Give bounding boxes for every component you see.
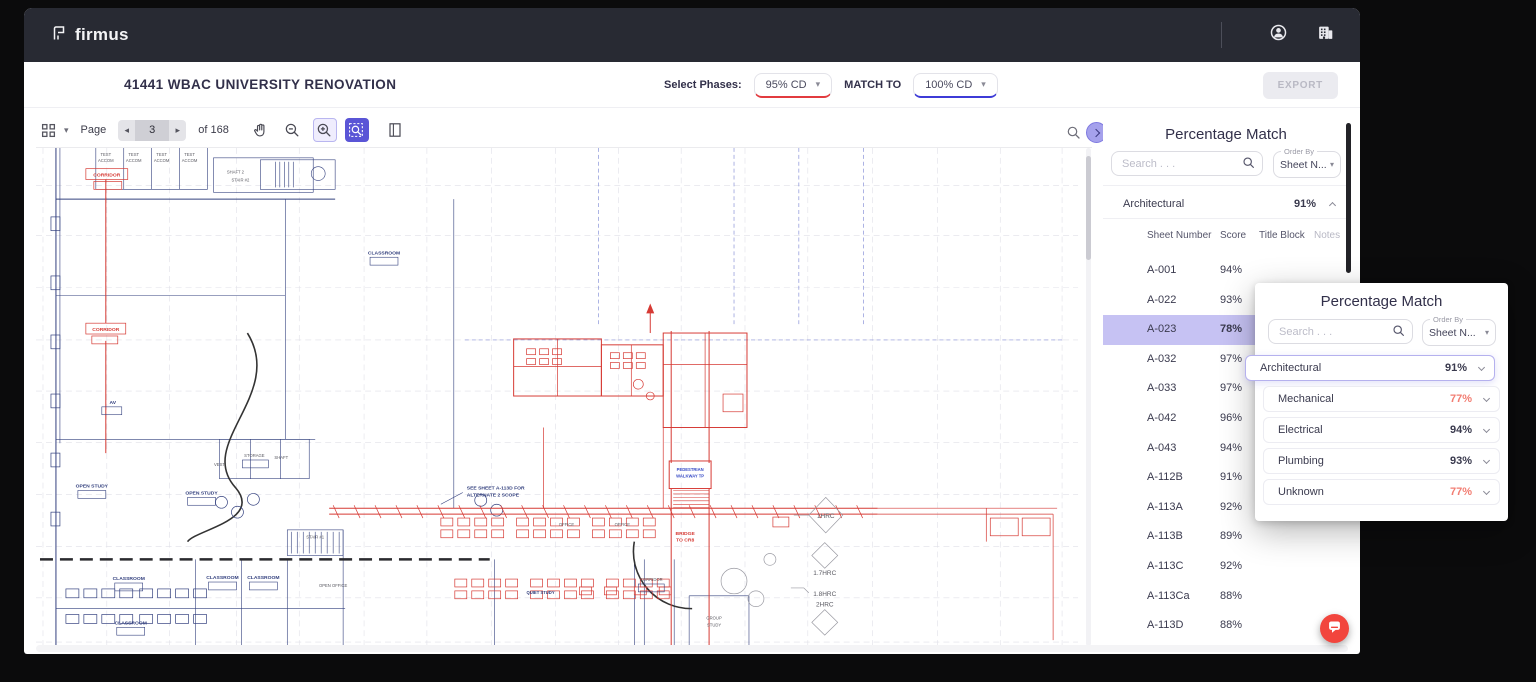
table-row[interactable]: A-113D88% [1103,611,1349,641]
category-name: Plumbing [1278,455,1324,467]
table-row[interactable]: A-00194% [1103,256,1349,286]
brand-logo[interactable]: firmus [50,24,129,47]
thumbnails-caret-icon[interactable]: ▾ [64,125,69,136]
previous-page-button[interactable]: ◂ [118,120,135,141]
divider [1103,218,1349,219]
sheet-score: 89% [1220,530,1242,542]
label-2hrc: 2HRC [816,602,834,609]
table-row[interactable]: A-113C92% [1103,552,1349,582]
sheet-score: 97% [1220,353,1242,365]
sheet-score: 91% [1220,471,1242,483]
sheet-score: 96% [1220,412,1242,424]
sheet-number: A-022 [1147,294,1176,306]
page-navigator: ◂ ▸ [118,120,186,141]
sheet-number: A-032 [1147,353,1176,365]
sheet-score: 88% [1220,619,1242,631]
popup-category-electrical[interactable]: Electrical 94% [1263,417,1500,443]
sheet-score: 78% [1220,323,1242,335]
label-office: OFFICE [615,522,631,527]
sheet-score: 88% [1220,590,1242,602]
divider [1103,185,1349,186]
canvas-scrollbar[interactable] [1086,148,1091,646]
pdf-toolbar: ▾ Page ◂ ▸ of 168 [36,114,1092,146]
chat-bubble-icon [1327,619,1342,639]
label-corridor: CORRIDOR [640,577,663,582]
sheet-number: A-113Ca [1147,590,1190,602]
canvas-scrollbar-thumb[interactable] [1086,156,1091,260]
label-group-study: STUDY [707,622,721,627]
chevron-right-icon [1091,128,1099,136]
plan-stair-hatch [275,162,339,554]
label-quiet-study: QUIET STUDY [526,590,554,595]
panel-title: Percentage Match [1103,126,1349,143]
plan-match-lines [465,148,1063,340]
plan-labels: TEST ACCOM TEST ACCOM TEST ACCOM TEST AC… [76,152,837,635]
plan-furniture [51,217,669,623]
label-1hrc: 1HRC [817,513,835,520]
chevron-down-icon [1483,425,1490,432]
sheet-number: A-001 [1147,264,1176,276]
order-by-value: Sheet N... [1429,327,1476,339]
label-bridge: BRIDGE [675,531,695,537]
sheet-number: A-113C [1147,560,1183,572]
sheet-number: A-113D [1147,619,1183,631]
search-document-icon[interactable] [1066,125,1082,146]
next-page-button[interactable]: ▸ [169,120,186,141]
brand-name: firmus [75,25,129,45]
label-classroom: CLASSROOM [206,575,238,581]
floor-plan: TEST ACCOM TEST ACCOM TEST ACCOM TEST AC… [36,148,1092,646]
popup-order-by-select[interactable]: Order By Sheet N... ▾ [1422,319,1496,346]
label-accom: ACCOM [182,158,198,163]
label-stair2: STAIR #2 [232,177,251,182]
label-group-study: GROUP [706,615,722,620]
chevron-down-icon [1483,456,1490,463]
label-open-study: OPEN STUDY [76,484,109,490]
app-window: firmus 41441 WBAC UNIVERSITY RENOVATION … [24,8,1360,654]
label-test: TEST [128,152,139,157]
sheet-number: A-043 [1147,442,1176,454]
label-classroom: CLASSROOM [368,250,400,256]
label-corridor: CORRIDOR [93,173,120,179]
label-open-study: OPEN STUDY [185,490,218,496]
marquee-zoom-icon[interactable] [345,118,369,142]
label-accom: ACCOM [154,158,170,163]
sheet-score: 94% [1220,442,1242,454]
label-shaft2: SHAFT 2 [227,170,245,175]
label-accom: ACCOM [98,158,114,163]
category-name: Unknown [1278,486,1324,498]
category-score: 91% [1294,198,1316,210]
table-header: Sheet Number Score Title Block Notes [1103,230,1349,252]
thumbnails-icon[interactable] [36,118,60,142]
search-icon [1392,324,1406,343]
drawing-canvas[interactable]: TEST ACCOM TEST ACCOM TEST ACCOM TEST AC… [36,148,1092,646]
table-row[interactable]: A-113B89% [1103,522,1349,552]
page-label: Page [81,124,107,136]
sheet-score: 92% [1220,501,1242,513]
label-av: AV [110,400,117,406]
label-vest: VEST [214,462,225,467]
category-name: Architectural [1260,362,1321,374]
caret-down-icon: ▾ [816,79,821,90]
sheet-number: A-042 [1147,412,1176,424]
sheet-score: 93% [1220,294,1242,306]
column-title-block[interactable]: Title Block [1259,230,1305,241]
project-title: 41441 WBAC UNIVERSITY RENOVATION [124,77,396,92]
category-score: 94% [1450,424,1472,436]
label-classroom: CLASSROOM [115,620,147,626]
label-accom: ACCOM [126,158,142,163]
label-open-office: OPEN OFFICE [319,583,348,588]
page-count-label: of 168 [198,124,229,136]
table-row[interactable]: A-113Ca88% [1103,582,1349,612]
sheet-score: 92% [1220,560,1242,572]
label-storage: STORAGE [244,453,265,458]
popup-category-architectural[interactable]: Architectural 91% [1245,355,1495,381]
search-input[interactable] [1111,151,1263,176]
export-button[interactable]: EXPORT [1263,72,1338,99]
caret-down-icon: ▾ [981,79,986,90]
plan-grid [36,148,1078,646]
label-test: TEST [184,152,195,157]
firmus-logo-icon [50,24,68,47]
category-score: 77% [1450,486,1472,498]
column-sheet-number[interactable]: Sheet Number [1147,230,1211,241]
label-alt-note: SEE SHEET A-113D FOR [467,486,525,492]
percentage-match-popup: Percentage Match Order By Sheet N... ▾ A… [1255,283,1508,521]
phase-to-value: 100% CD [925,79,972,91]
label-corridor: CORRIDOR [92,327,119,333]
category-score: 93% [1450,455,1472,467]
label-pedestrian: WALKWAY TP [676,474,704,479]
label-test: TEST [100,152,111,157]
chevron-down-icon [1483,394,1490,401]
sheet-number: A-023 [1147,323,1176,335]
account-icon[interactable] [1270,24,1287,46]
category-score: 91% [1445,362,1467,374]
label-office: OFFICE [559,522,575,527]
chevron-down-icon [1478,363,1485,370]
order-by-select[interactable]: Order By Sheet N... ▾ [1273,151,1341,178]
zoom-in-icon[interactable] [313,118,337,142]
popup-category-mechanical[interactable]: Mechanical 77% [1263,386,1500,412]
plan-existing-structure [40,148,776,646]
label-classroom: CLASSROOM [247,575,279,581]
caret-down-icon: ▾ [1485,328,1489,337]
category-name: Mechanical [1278,393,1334,405]
label-test: TEST [156,152,167,157]
popup-category-plumbing[interactable]: Plumbing 93% [1263,448,1500,474]
caret-down-icon: ▾ [1330,160,1334,169]
column-notes[interactable]: Notes [1314,230,1340,241]
label-pedestrian: PEDESTRIAN [677,467,704,472]
sheet-score: 97% [1220,382,1242,394]
label-bridge: TO CR8 [676,538,694,544]
page-number-input[interactable] [135,120,169,141]
sheet-number: A-033 [1147,382,1176,394]
category-name: Architectural [1123,198,1184,210]
order-by-label: Order By [1281,147,1317,156]
popup-category-list: Architectural 91% Mechanical 77% Electri… [1255,355,1508,510]
sheet-number: A-113A [1147,501,1183,513]
category-name: Electrical [1278,424,1323,436]
pan-tool-icon[interactable] [249,118,273,142]
organization-icon[interactable] [1317,24,1334,46]
chat-launcher-button[interactable] [1320,614,1349,643]
sheet-score: 94% [1220,264,1242,276]
chevron-up-icon [1329,201,1336,208]
label-18hrc: 1.8HRC [813,591,836,598]
label-classroom: CLASSROOM [113,576,145,582]
order-by-value: Sheet N... [1280,159,1326,171]
select-phases-label: Select Phases: [664,79,742,91]
match-to-label: MATCH TO [844,79,901,91]
label-17hrc: 1.7HRC [813,570,836,577]
label-shaft: SHAFT [274,455,288,460]
category-architectural[interactable]: Architectural 91% [1103,189,1349,218]
phase-from-dropdown[interactable]: 95% CD ▾ [754,73,833,98]
category-score: 77% [1450,393,1472,405]
label-alt-note: ALTERNATE 2 SCOPE [467,492,520,498]
screen: firmus 41441 WBAC UNIVERSITY RENOVATION … [0,0,1536,682]
phase-to-dropdown[interactable]: 100% CD ▾ [913,73,998,98]
sheet-number: A-113B [1147,530,1183,542]
sidebar-scrollbar-thumb[interactable] [1346,123,1351,273]
popup-title: Percentage Match [1255,293,1508,310]
phase-from-value: 95% CD [766,79,807,91]
order-by-label: Order By [1430,315,1466,324]
popup-category-unknown[interactable]: Unknown 77% [1263,479,1500,505]
label-stair1: STAIR #1 [306,535,325,540]
page-layout-icon[interactable] [383,118,407,142]
chevron-down-icon [1483,487,1490,494]
sheet-number: A-112B [1147,471,1183,483]
search-icon [1242,156,1256,175]
zoom-out-icon[interactable] [281,118,305,142]
project-header: 41441 WBAC UNIVERSITY RENOVATION Select … [24,62,1360,108]
column-score[interactable]: Score [1220,230,1246,241]
horizontal-scrollbar[interactable] [36,645,1348,652]
navbar-divider [1221,22,1222,48]
top-navbar: firmus [24,8,1360,62]
